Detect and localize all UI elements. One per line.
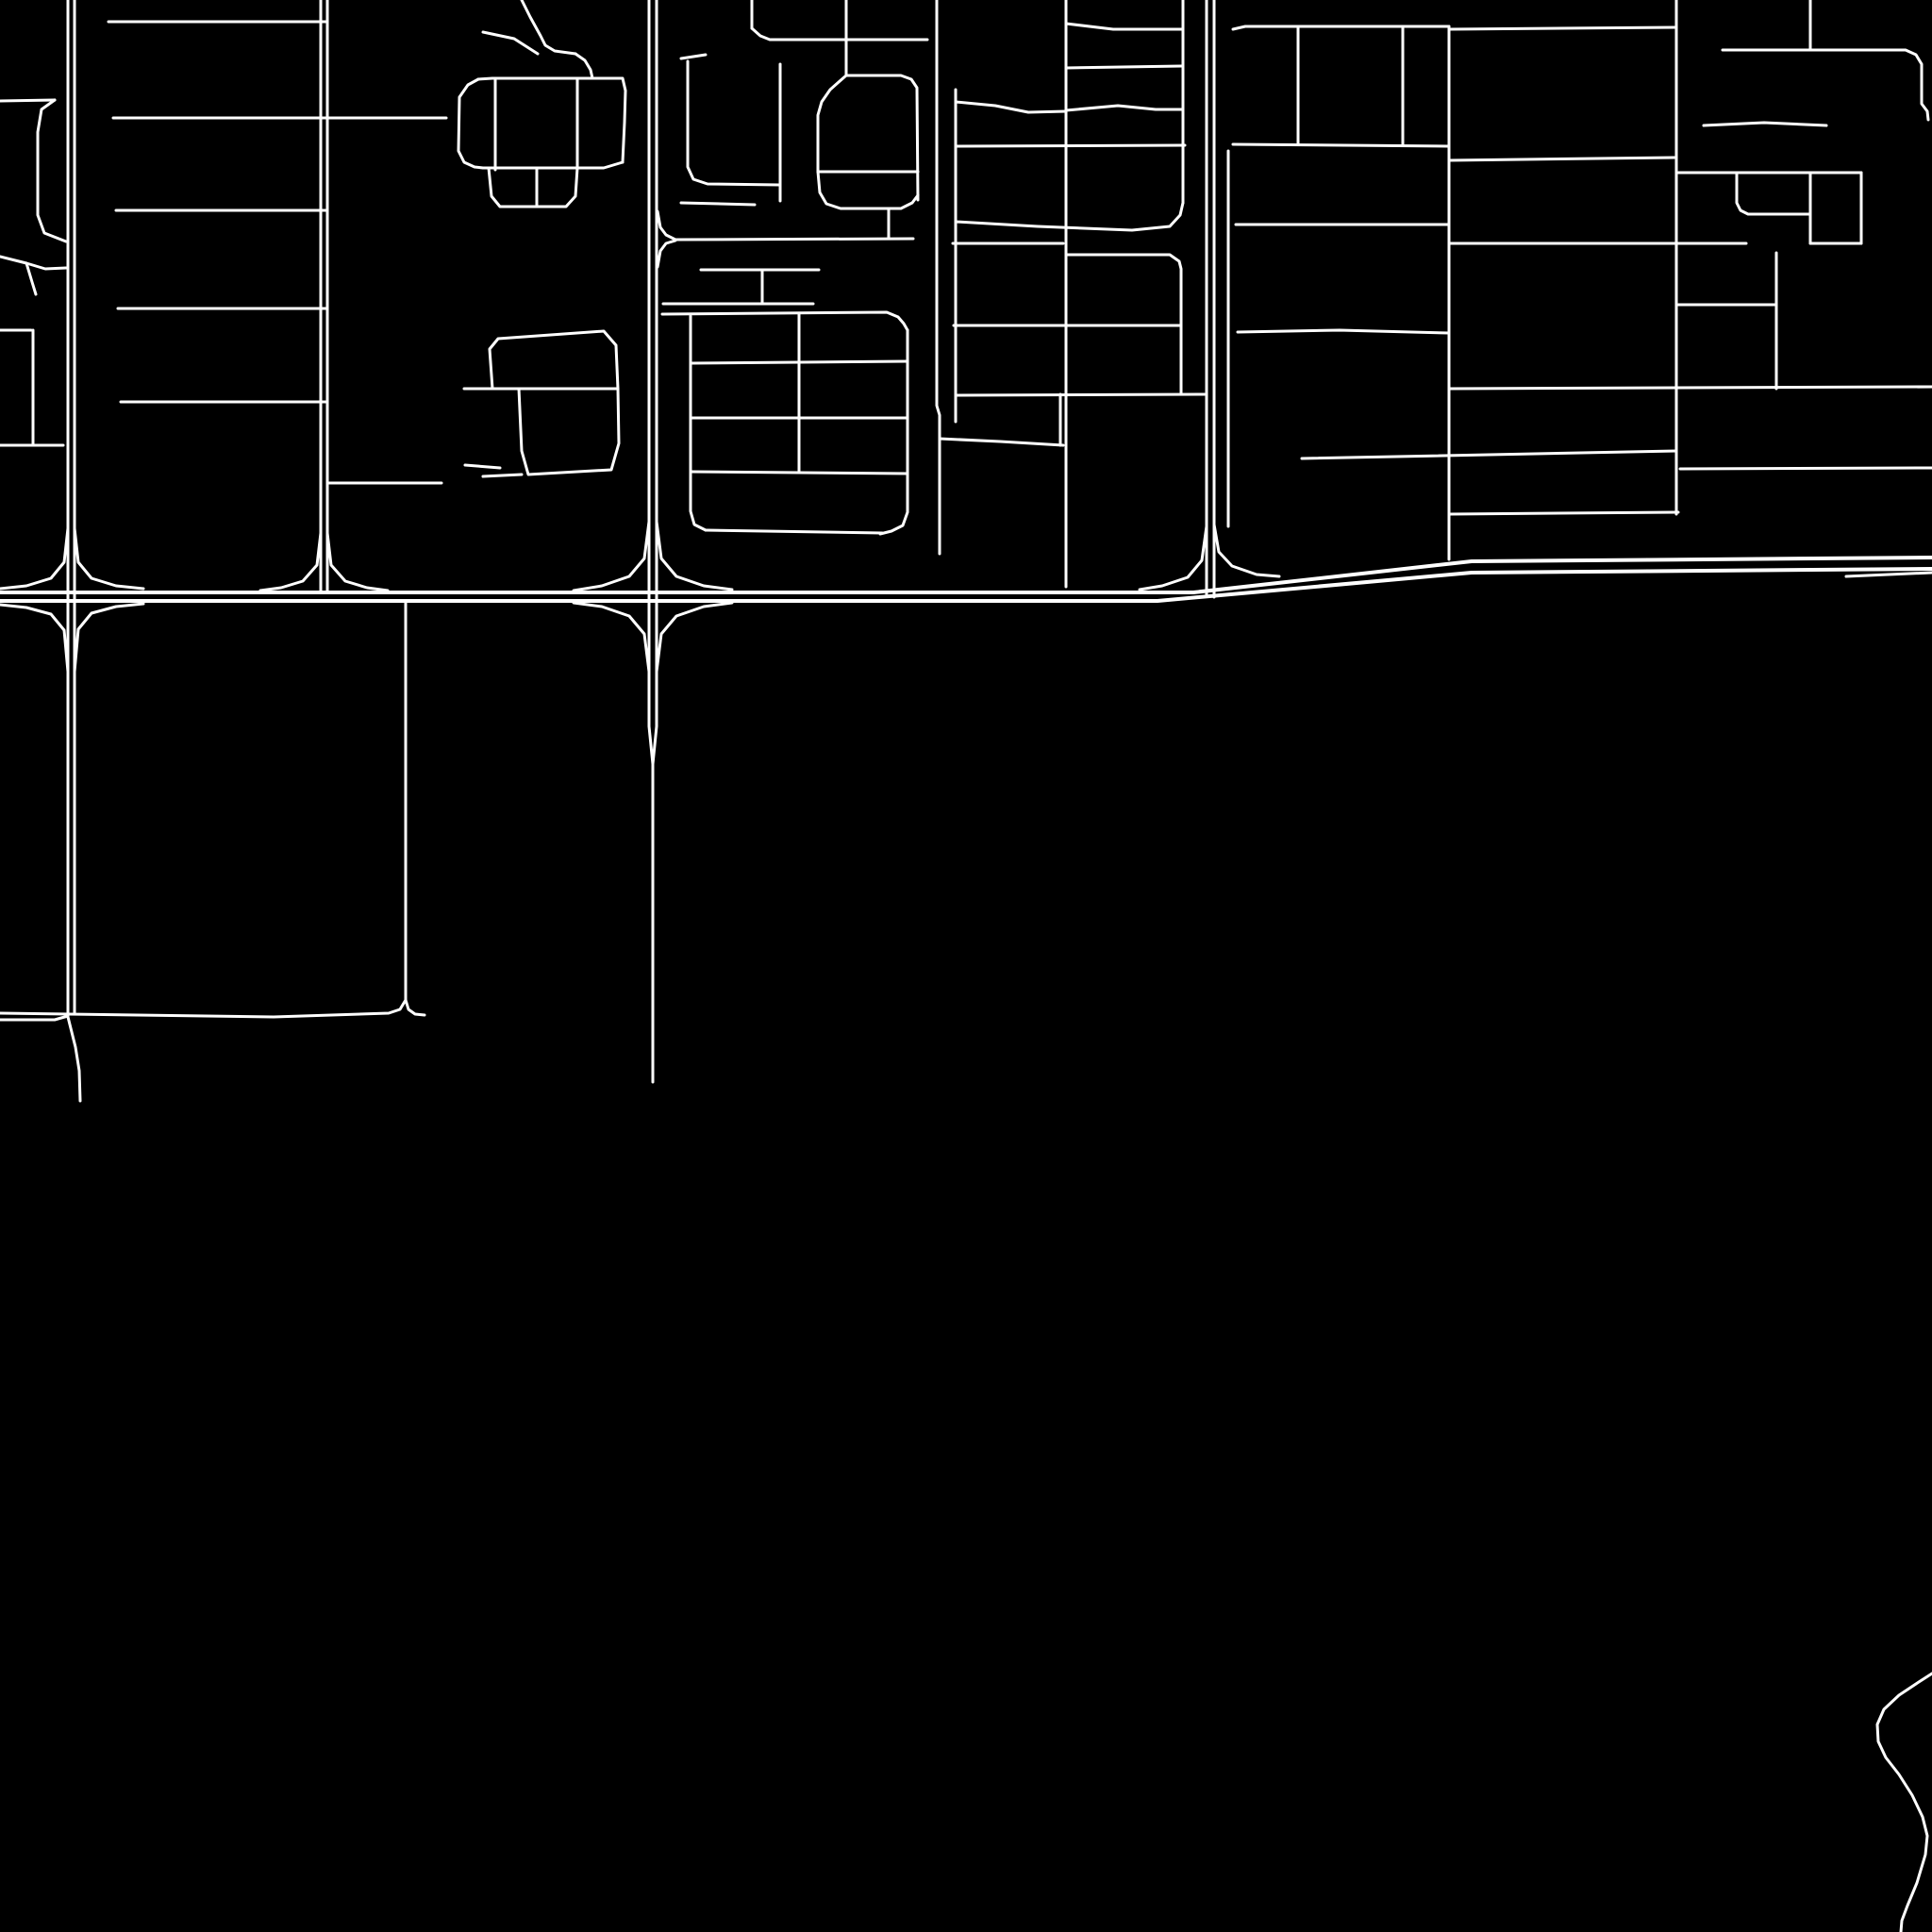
road-street <box>1737 173 1809 214</box>
road-street <box>818 172 918 208</box>
road-street <box>0 100 55 101</box>
road-street <box>1449 387 1932 389</box>
road-street <box>940 439 1063 445</box>
road-street <box>458 79 483 168</box>
road-ramp-x340-nw <box>260 533 321 591</box>
road-vertical-x430-south <box>406 601 425 1015</box>
road-street <box>0 257 66 269</box>
road-street <box>956 394 1205 395</box>
road-arterial-top <box>0 558 1932 592</box>
road-street <box>1449 512 1678 514</box>
road-street-south-horizontal-b <box>0 1016 68 1020</box>
road-street <box>522 0 575 54</box>
road-street <box>1066 24 1182 29</box>
road-street-south-horizontal <box>0 1000 406 1017</box>
road-arterial-spur-right <box>1846 573 1932 576</box>
road-ramp-x688-nw <box>574 522 649 591</box>
road-street <box>492 78 625 162</box>
road-ramp-x688-sw <box>574 603 649 672</box>
road-ramp-x72-nw <box>0 528 68 589</box>
road-ramp-x72-ne <box>75 528 143 589</box>
road-street <box>681 203 755 205</box>
road-map-canvas <box>0 0 1932 1932</box>
road-street <box>675 239 913 240</box>
road-street <box>38 100 66 241</box>
road-street <box>956 203 1183 230</box>
road-street <box>691 472 908 474</box>
road-street <box>688 61 780 185</box>
road-ramp-x688-ne <box>657 522 732 590</box>
road-street <box>26 263 36 294</box>
map-viewport <box>0 0 1932 1932</box>
road-s-curve-bottom-right <box>1877 1674 1932 1932</box>
road-street <box>490 331 618 389</box>
road-vertical-x696 <box>653 0 657 764</box>
road-street <box>519 389 619 475</box>
road-vertical-x688 <box>649 0 653 1082</box>
road-street <box>1704 123 1826 125</box>
road-street <box>1449 158 1674 160</box>
road-street <box>1066 106 1182 110</box>
road-street <box>1723 50 1928 120</box>
road-ramp-x340-ne <box>327 533 388 591</box>
road-ramp-x1279-ne <box>1214 525 1279 576</box>
road-street <box>1233 144 1449 146</box>
road-street <box>818 75 846 172</box>
road-street <box>956 102 1066 112</box>
road-street <box>1680 468 1932 469</box>
road-street <box>1302 451 1676 458</box>
road-street <box>956 145 1185 146</box>
road-street <box>483 475 522 476</box>
road-ramp-x72-se <box>75 604 143 672</box>
road-street <box>752 28 927 40</box>
road-street <box>691 316 706 530</box>
road-ramp-x1279-nw <box>1140 526 1207 590</box>
road-street <box>846 75 918 200</box>
road-street <box>658 211 675 240</box>
road-street <box>691 361 908 363</box>
road-vertical-x993 <box>937 0 940 554</box>
road-street <box>465 465 500 468</box>
road-street <box>1066 66 1182 68</box>
road-street <box>489 168 577 207</box>
road-ramp-x72-sw <box>0 605 68 672</box>
road-street <box>1238 330 1449 333</box>
road-ramp-x688-se <box>657 603 732 672</box>
road-street <box>662 312 908 330</box>
road-street <box>575 54 592 78</box>
road-street <box>706 530 882 533</box>
road-street <box>1449 27 1676 29</box>
road-street <box>483 162 623 168</box>
road-street <box>483 32 538 54</box>
road-street <box>658 241 675 267</box>
road-street <box>478 78 492 79</box>
road-street <box>681 55 706 58</box>
road-street <box>1233 26 1449 29</box>
